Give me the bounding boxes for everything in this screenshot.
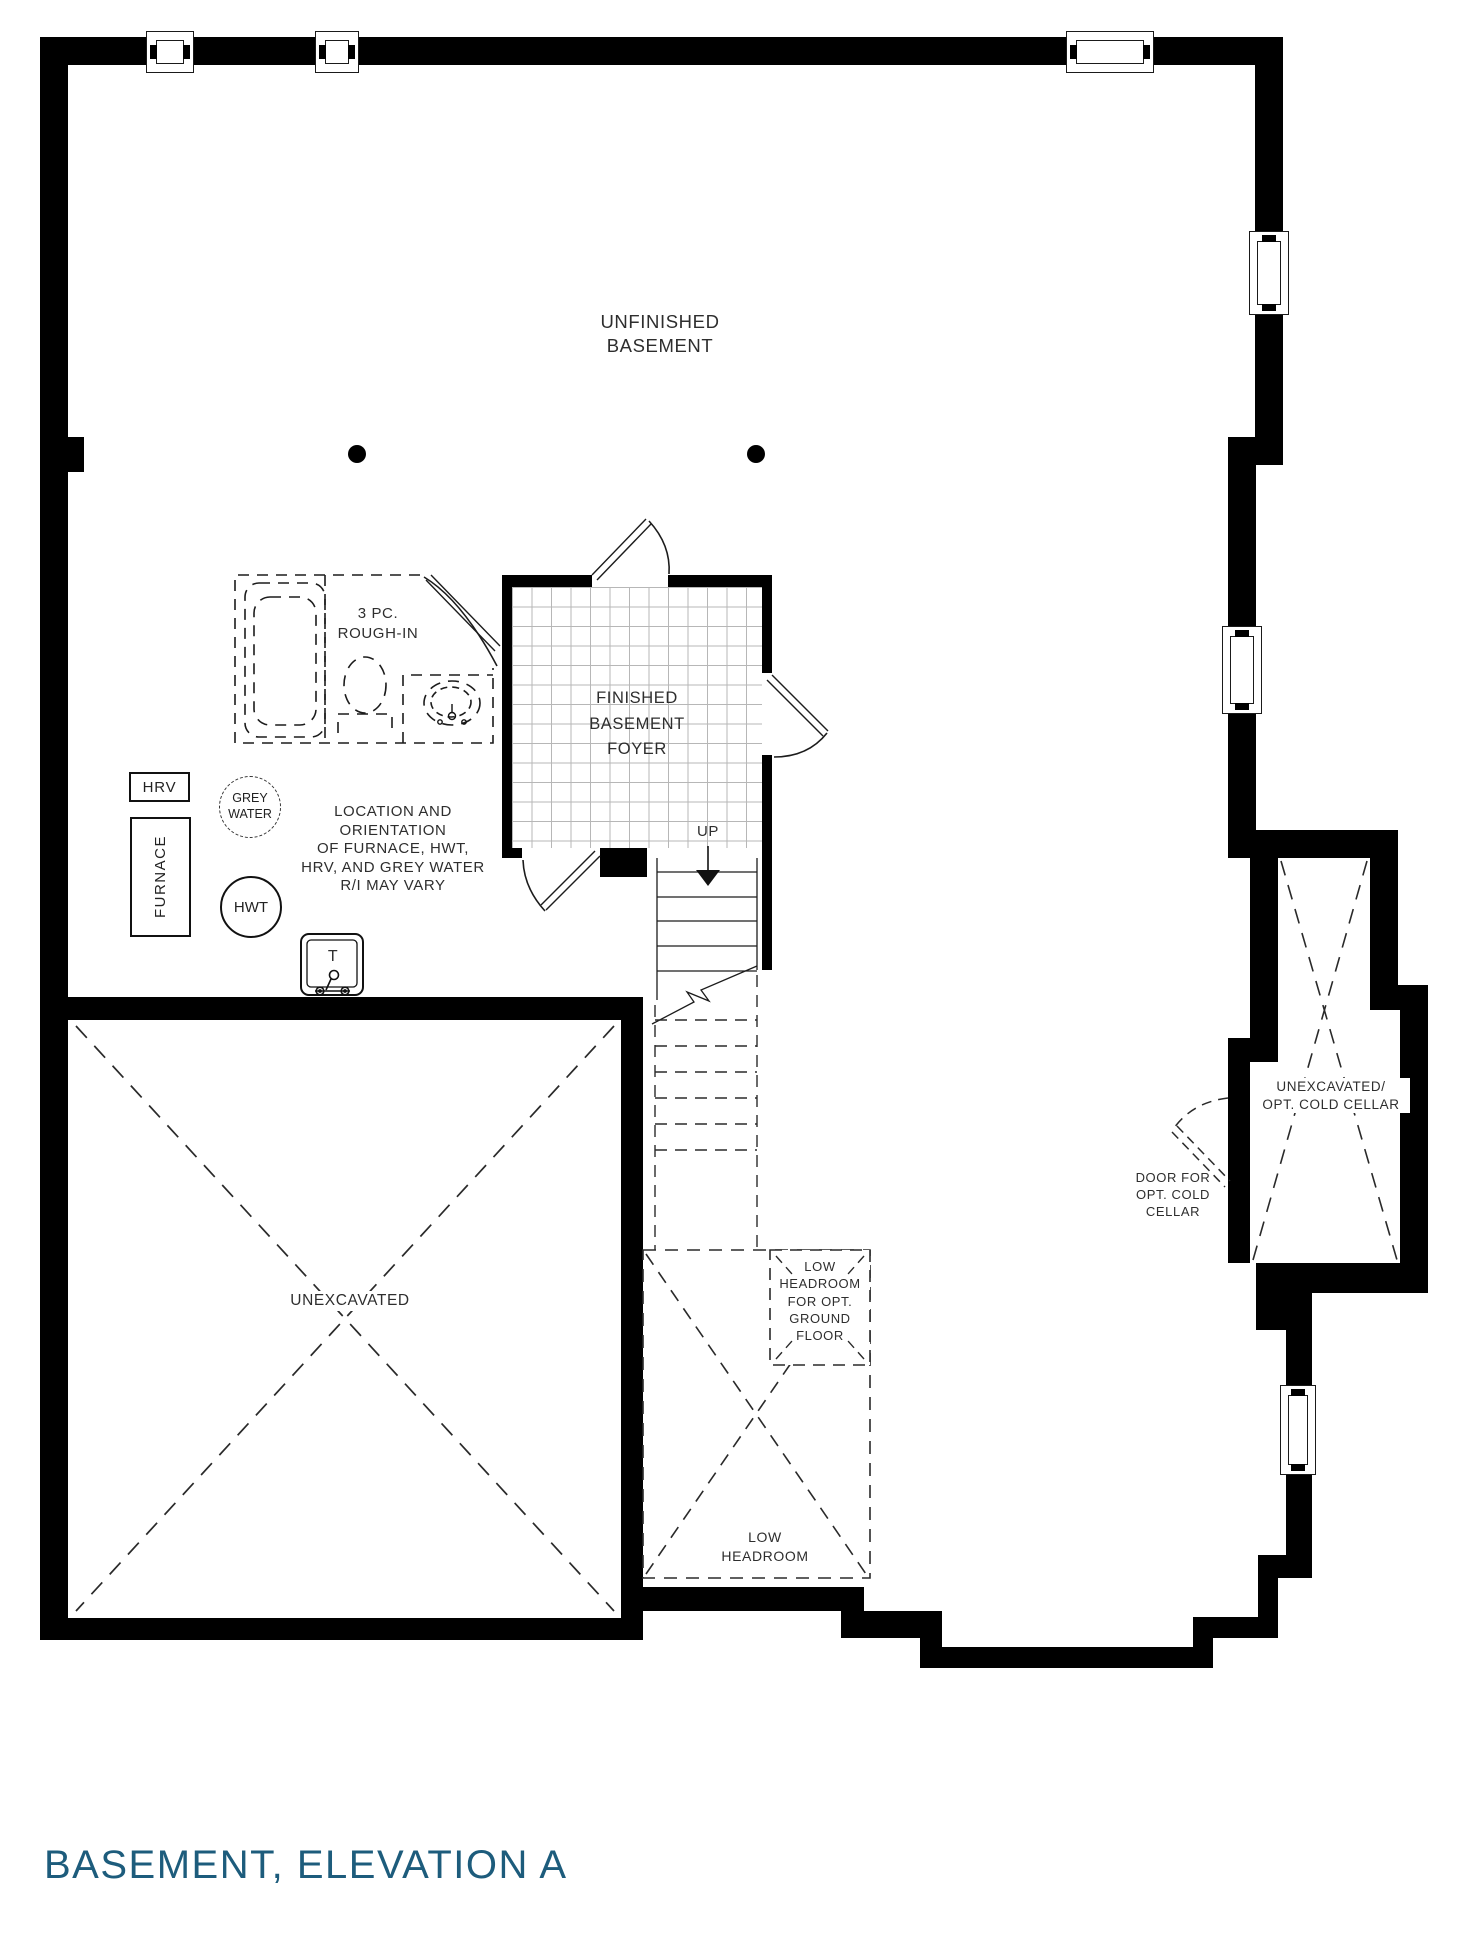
hrv-label: HRV	[143, 779, 177, 796]
grey-water-label-1: GREY	[232, 791, 267, 807]
stairs-dashed	[655, 975, 757, 1250]
up-label: UP	[680, 822, 736, 842]
stair-break-line	[652, 966, 757, 1024]
cellar-door-note: DOOR FOR OPT. COLD CELLAR	[1118, 1170, 1228, 1221]
room-label-cold-cellar: UNEXCAVATED/ OPT. COLD CELLAR	[1252, 1078, 1410, 1113]
furnace-box: FURNACE	[130, 817, 191, 937]
hwt-label: HWT	[234, 899, 268, 916]
foyer-east-door	[767, 675, 828, 757]
floor-plan: HRV FURNACE GREY WATER HWT T UNFINISHED …	[0, 0, 1470, 1950]
tub-label: T	[318, 946, 348, 967]
room-label-unexcavated: UNEXCAVATED	[262, 1291, 438, 1311]
furnace-label: FURNACE	[152, 835, 169, 918]
grey-water-circle: GREY WATER	[219, 776, 281, 838]
location-note: LOCATION AND ORIENTATION OF FURNACE, HWT…	[298, 803, 488, 896]
hwt-circle: HWT	[220, 876, 282, 938]
foyer-south-door	[523, 851, 600, 911]
low-headroom-opt-label: LOW HEADROOM FOR OPT. GROUND FLOOR	[772, 1258, 868, 1344]
plan-linework	[0, 0, 1470, 1950]
foyer-north-door	[592, 519, 669, 580]
room-label-unfinished-basement: UNFINISHED BASEMENT	[560, 310, 760, 359]
low-headroom-label: LOW HEADROOM	[700, 1528, 830, 1566]
room-label-foyer: FINISHED BASEMENT FOYER	[562, 686, 712, 763]
column-dot	[747, 445, 765, 463]
grey-water-label-2: WATER	[228, 807, 272, 823]
rough-in-label: 3 PC. ROUGH-IN	[318, 604, 438, 644]
cold-cellar-x	[1253, 861, 1397, 1260]
tub-inner	[254, 597, 316, 725]
stairs	[652, 858, 757, 1024]
unexcavated-x	[76, 1026, 614, 1611]
tub-outline	[245, 583, 325, 737]
toilet-bowl	[344, 657, 386, 713]
hrv-box: HRV	[129, 772, 190, 802]
page-title: BASEMENT, ELEVATION A	[44, 1843, 568, 1888]
column-dot	[348, 445, 366, 463]
up-arrow-icon	[696, 846, 720, 886]
toilet-tank	[338, 714, 392, 733]
